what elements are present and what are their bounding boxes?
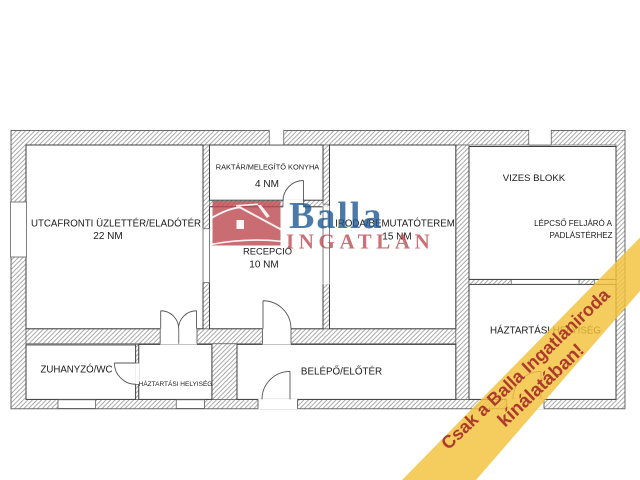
svg-text:4 NM: 4 NM	[255, 179, 279, 190]
svg-text:22 NM: 22 NM	[93, 231, 122, 242]
svg-text:LÉPCSŐ FELJÁRÓ A: LÉPCSŐ FELJÁRÓ A	[534, 219, 612, 228]
svg-text:UTCAFRONTI ÜZLETTÉR/ELADÓTÉR: UTCAFRONTI ÜZLETTÉR/ELADÓTÉR	[31, 218, 201, 229]
svg-text:10 NM: 10 NM	[249, 260, 278, 271]
svg-text:VIZES BLOKK: VIZES BLOKK	[503, 173, 566, 184]
svg-text:BELÉPŐ/ELŐTÉR: BELÉPŐ/ELŐTÉR	[301, 367, 382, 378]
svg-text:ZUHANYZÓ/WC: ZUHANYZÓ/WC	[40, 365, 112, 376]
svg-text:INGATLAN: INGATLAN	[286, 230, 434, 254]
svg-text:PADLÁSTÉRHEZ: PADLÁSTÉRHEZ	[550, 231, 613, 240]
svg-text:RECEPCIÓ: RECEPCIÓ	[243, 246, 292, 257]
svg-text:RAKTÁR/MELEGÍTŐ KONYHA: RAKTÁR/MELEGÍTŐ KONYHA	[216, 163, 320, 172]
svg-text:HÁZTARTÁSI HELYISÉG: HÁZTARTÁSI HELYISÉG	[139, 379, 213, 388]
